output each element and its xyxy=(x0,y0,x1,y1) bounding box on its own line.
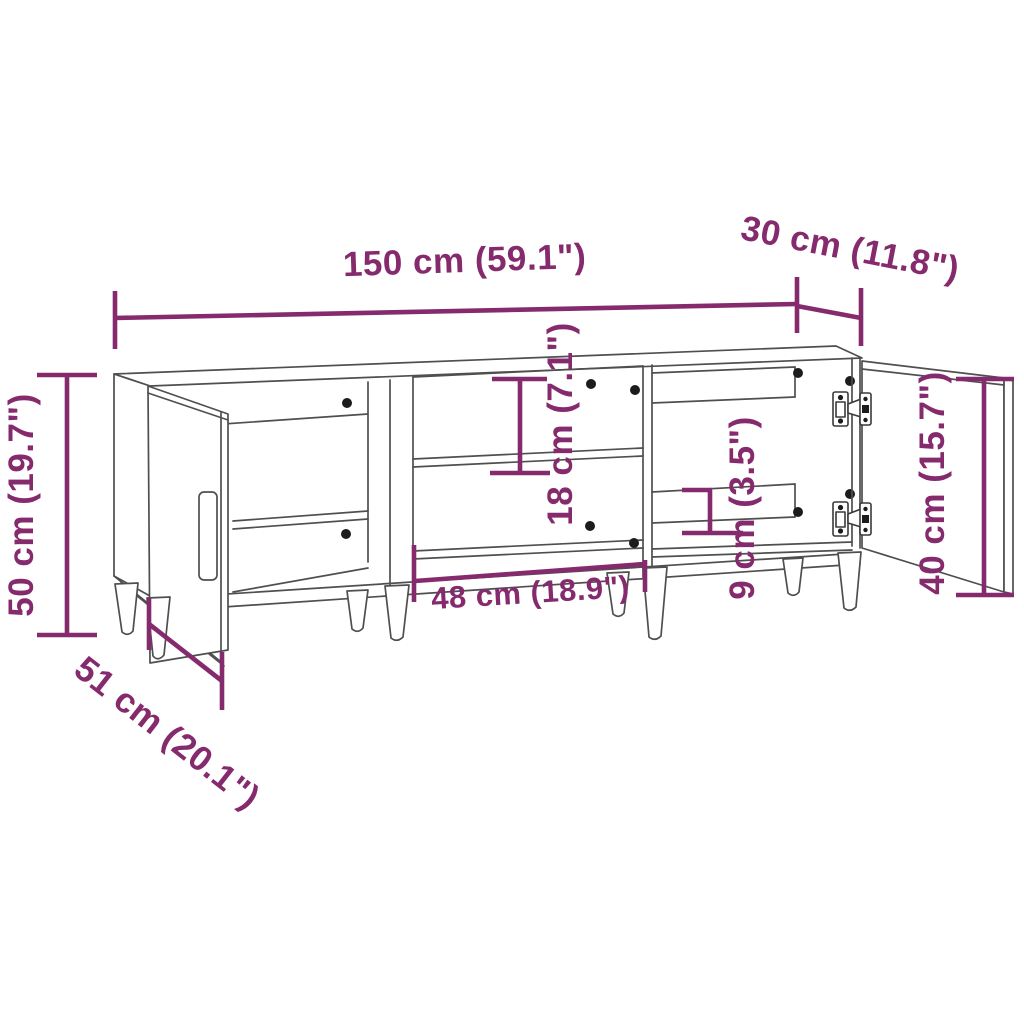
dimension-height-label: 50 cm (19.7") xyxy=(2,393,41,617)
shelf-pin-dot xyxy=(585,521,595,531)
dimension-opening-width: 48 cm (18.9") xyxy=(414,545,645,616)
leg xyxy=(347,590,368,631)
dimension-height: 50 cm (19.7") xyxy=(2,375,97,635)
shelf-pin-dot xyxy=(845,376,855,386)
dimension-opening-height: 18 cm (7.1") xyxy=(490,322,580,526)
shelf-pin-dot xyxy=(342,398,352,408)
shelf-pin-dot xyxy=(629,538,639,548)
shelf-pin-dot xyxy=(341,529,351,539)
middle-compartment xyxy=(413,366,643,559)
leg xyxy=(838,552,861,610)
leg xyxy=(115,583,138,634)
shelf-pin-dot xyxy=(845,489,855,499)
shelf-pin-dot xyxy=(630,385,640,395)
shelf-pin-dot xyxy=(586,379,596,389)
divider-left xyxy=(390,377,413,587)
dimension-opening-height-label: 18 cm (7.1") xyxy=(541,322,580,526)
door-handle xyxy=(199,492,217,580)
leg xyxy=(783,558,803,595)
tv-stand-diagram-canvas: 150 cm (59.1") 30 cm (11.8") 50 cm (19.7… xyxy=(0,0,1024,1024)
leg xyxy=(385,585,409,640)
top-panel xyxy=(114,346,862,386)
dimension-width-label: 150 cm (59.1") xyxy=(342,237,587,284)
dimension-width: 150 cm (59.1") xyxy=(115,237,797,349)
dimension-rear-gap: 9 cm (3.5") xyxy=(682,416,762,600)
product-dimension-diagram: 150 cm (59.1") 30 cm (11.8") 50 cm (19.7… xyxy=(0,0,1024,1024)
dimension-top-depth: 30 cm (11.8") xyxy=(738,208,963,346)
dimension-top-depth-label: 30 cm (11.8") xyxy=(738,208,963,289)
dimension-door-height-label: 40 cm (15.7") xyxy=(913,371,952,595)
dimension-total-depth-label: 51 cm (20.1") xyxy=(67,649,267,817)
divider-right xyxy=(643,365,652,577)
shelf-pin-dot xyxy=(793,507,803,517)
shelf-pin-dot xyxy=(793,368,803,378)
dimension-rear-gap-label: 9 cm (3.5") xyxy=(723,416,762,600)
